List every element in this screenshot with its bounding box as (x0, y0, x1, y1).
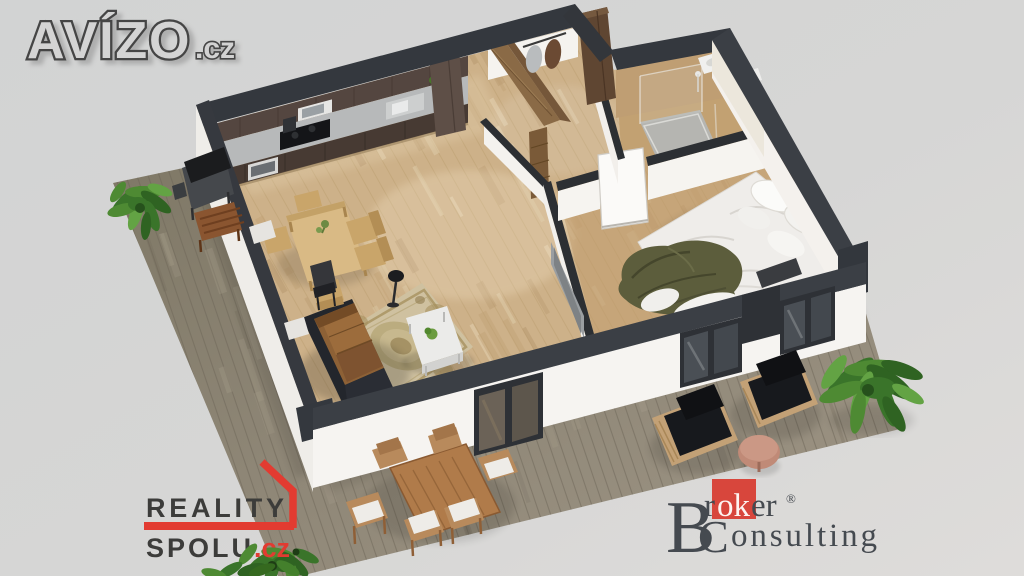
svg-text:.cz: .cz (254, 533, 290, 563)
svg-text:SPOLU: SPOLU (146, 533, 252, 563)
svg-text:®: ® (786, 491, 796, 506)
svg-text:onsulting: onsulting (731, 518, 877, 554)
svg-text:C: C (698, 511, 729, 562)
svg-text:.cz: .cz (195, 32, 235, 65)
svg-text:AVÍZO: AVÍZO (27, 12, 190, 70)
